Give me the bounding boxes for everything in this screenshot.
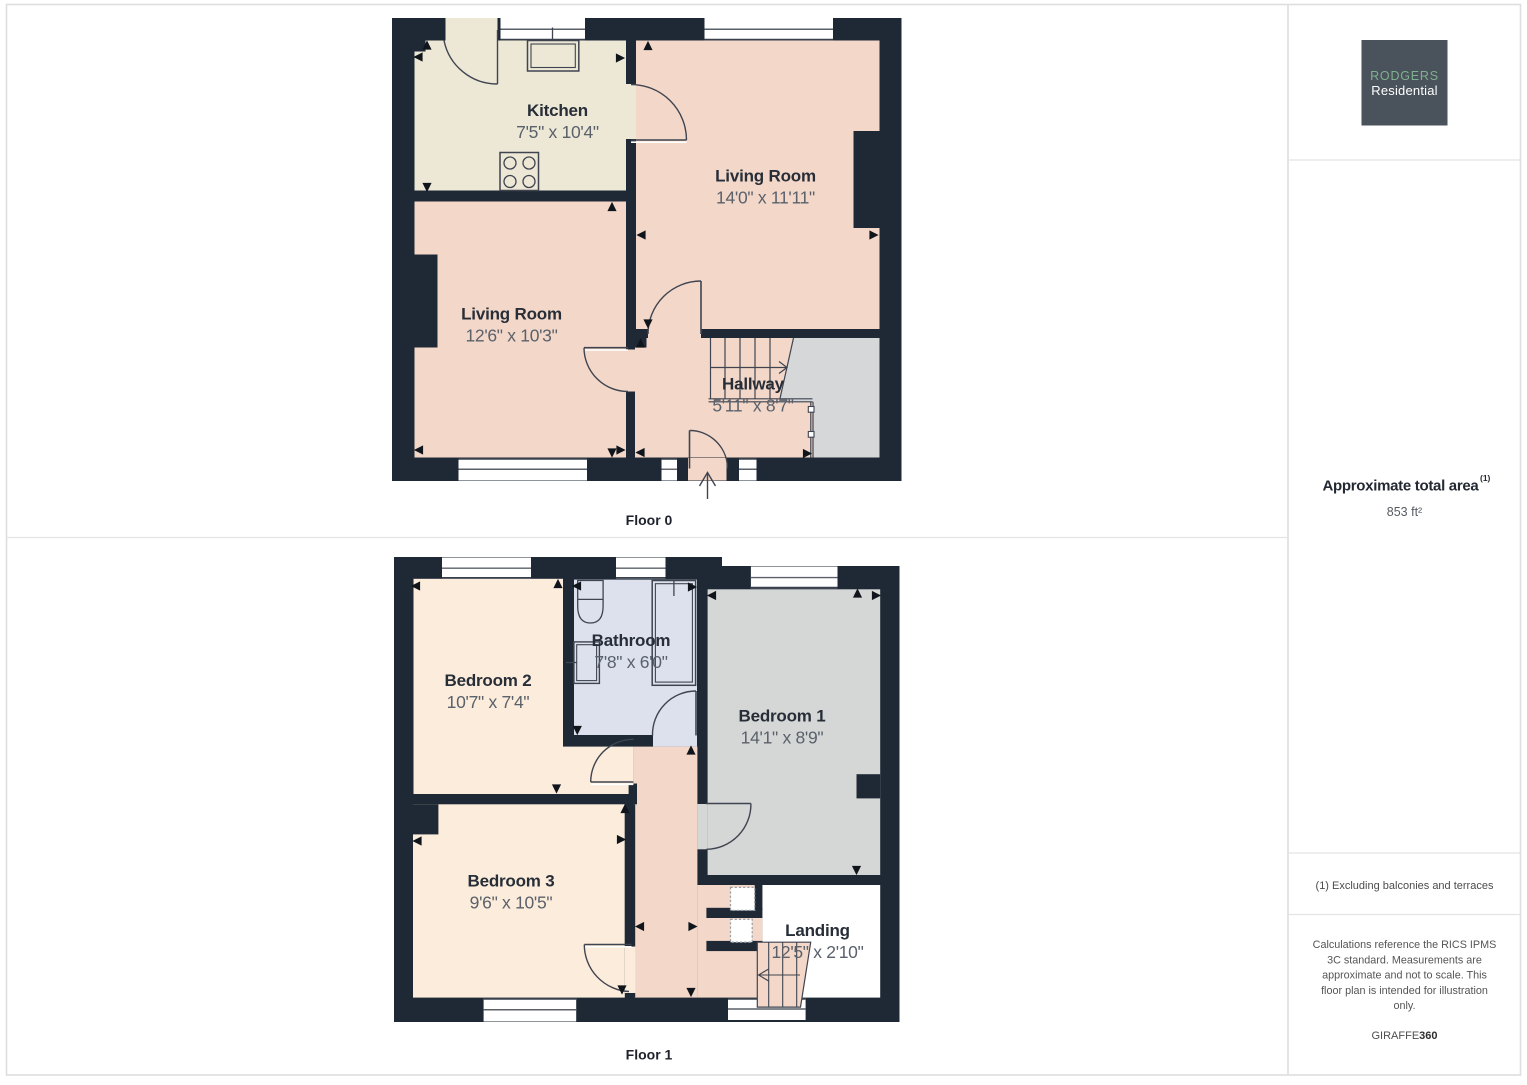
svg-text:9'6" x 10'5": 9'6" x 10'5" [470, 893, 553, 913]
svg-text:floor plan is intended for ill: floor plan is intended for illustration [1321, 985, 1488, 997]
svg-text:7'8" x 6'0": 7'8" x 6'0" [594, 652, 667, 672]
svg-text:Landing: Landing [785, 921, 850, 940]
svg-text:approximate and not to scale.: approximate and not to scale. This [1322, 970, 1487, 982]
svg-text:12'5" x 2'10": 12'5" x 2'10" [771, 942, 863, 962]
svg-text:14'1" x 8'9": 14'1" x 8'9" [741, 728, 824, 748]
svg-text:(1) Excluding balconies and te: (1) Excluding balconies and terraces [1316, 880, 1494, 892]
svg-text:10'7" x 7'4": 10'7" x 7'4" [447, 692, 530, 712]
svg-text:Approximate total area: Approximate total area [1323, 478, 1480, 495]
svg-text:853 ft²: 853 ft² [1387, 505, 1422, 519]
svg-text:Kitchen: Kitchen [527, 101, 588, 120]
svg-text:Residential: Residential [1371, 83, 1438, 98]
svg-text:GIRAFFE360: GIRAFFE360 [1371, 1030, 1437, 1042]
svg-text:Calculations reference the RIC: Calculations reference the RICS IPMS [1313, 939, 1497, 951]
svg-text:7'5" x 10'4": 7'5" x 10'4" [516, 122, 599, 142]
svg-text:Bedroom 3: Bedroom 3 [468, 872, 555, 891]
svg-text:RODGERS: RODGERS [1370, 69, 1439, 83]
svg-text:Hallway: Hallway [722, 375, 785, 394]
svg-text:Bedroom 2: Bedroom 2 [445, 671, 532, 690]
svg-text:only.: only. [1393, 1000, 1415, 1012]
svg-text:Living Room: Living Room [461, 305, 562, 324]
svg-text:Floor 0: Floor 0 [626, 512, 673, 528]
svg-text:12'6" x 10'3": 12'6" x 10'3" [465, 326, 557, 346]
svg-text:(1): (1) [1480, 473, 1491, 483]
svg-text:3C standard. Measurements are: 3C standard. Measurements are [1327, 954, 1482, 966]
svg-text:Living Room: Living Room [715, 167, 816, 186]
svg-text:Bathroom: Bathroom [592, 631, 671, 650]
svg-text:Floor 1: Floor 1 [626, 1047, 673, 1063]
svg-text:14'0" x 11'11": 14'0" x 11'11" [716, 188, 815, 208]
svg-text:5'11" x 8'7": 5'11" x 8'7" [712, 396, 793, 416]
svg-text:Bedroom 1: Bedroom 1 [739, 707, 826, 726]
